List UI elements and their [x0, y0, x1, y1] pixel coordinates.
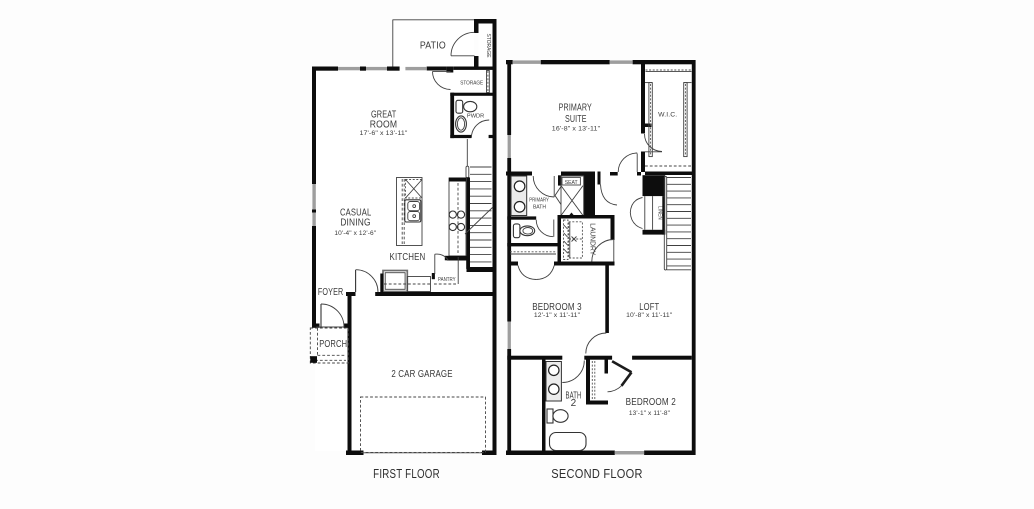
svg-text:PRIMARY: PRIMARY [529, 198, 549, 204]
svg-text:ROOM: ROOM [370, 120, 398, 131]
svg-text:PANTRY: PANTRY [438, 277, 456, 283]
svg-text:PATIO: PATIO [420, 40, 446, 51]
svg-text:SUITE: SUITE [565, 114, 587, 125]
svg-text:SECOND FLOOR: SECOND FLOOR [551, 467, 643, 481]
svg-text:10'-4" x 12'-6": 10'-4" x 12'-6" [334, 230, 376, 237]
svg-text:SEAT: SEAT [565, 180, 579, 186]
svg-text:DINING: DINING [340, 218, 370, 229]
svg-text:FIRST FLOOR: FIRST FLOOR [373, 467, 440, 481]
svg-text:BATH: BATH [533, 204, 546, 210]
svg-text:12'-1" x 11'-11": 12'-1" x 11'-11" [534, 312, 580, 319]
svg-text:10'-8" x 11'-11": 10'-8" x 11'-11" [626, 312, 672, 319]
svg-text:W.I.C.: W.I.C. [658, 111, 677, 118]
svg-text:PWDR: PWDR [467, 114, 485, 120]
svg-text:2 CAR GARAGE: 2 CAR GARAGE [391, 369, 452, 380]
svg-text:LINEN: LINEN [656, 206, 662, 220]
svg-text:16'-8" x 13'-11": 16'-8" x 13'-11" [552, 126, 600, 133]
svg-text:KITCHEN: KITCHEN [390, 252, 426, 263]
svg-text:PORCH: PORCH [319, 339, 347, 350]
svg-text:STORAGE: STORAGE [460, 81, 483, 87]
svg-text:BEDROOM 2: BEDROOM 2 [626, 397, 676, 408]
svg-text:13'-1" x 11'-8": 13'-1" x 11'-8" [629, 410, 670, 417]
svg-text:FOYER: FOYER [318, 287, 344, 298]
svg-text:PRIMARY: PRIMARY [559, 103, 592, 114]
svg-text:17'-6" x 13'-11": 17'-6" x 13'-11" [360, 130, 408, 137]
svg-text:2: 2 [571, 398, 577, 409]
svg-text:STORAGE: STORAGE [485, 34, 491, 59]
